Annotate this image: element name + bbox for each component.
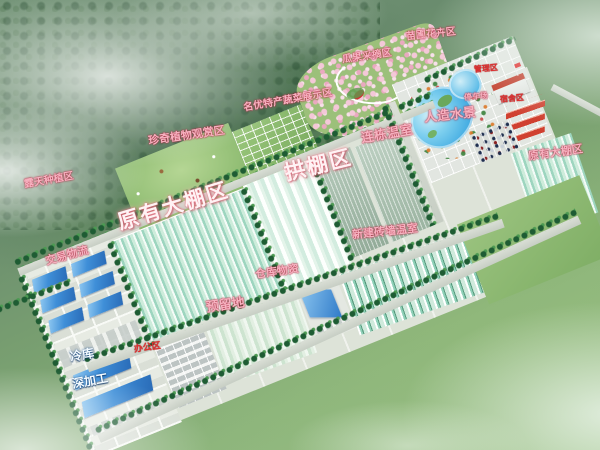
blue-roof-building bbox=[79, 271, 115, 298]
aerial-site-plan: 露天种植区 珍奇植物观赏区 名优特产蔬菜展示区 瓜果采摘区 苗圃花卉区 管理区 … bbox=[0, 0, 600, 450]
blue-roof-building bbox=[48, 307, 84, 334]
pond-island bbox=[426, 128, 438, 139]
blue-roof-building bbox=[87, 291, 123, 318]
entrance-road bbox=[550, 84, 600, 123]
